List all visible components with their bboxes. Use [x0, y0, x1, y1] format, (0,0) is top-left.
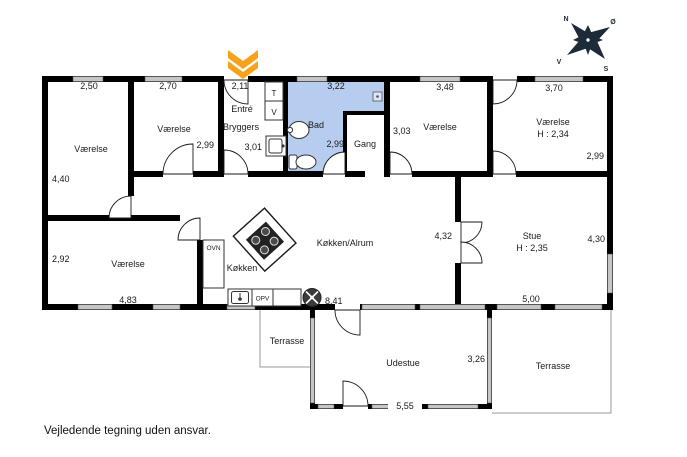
kitchen-counter: OPV [228, 289, 321, 307]
dim-2-92: 2,92 [52, 254, 70, 264]
dim-3-03: 3,03 [393, 126, 411, 136]
sink-tap [281, 144, 284, 147]
compass-north-label: N [563, 16, 568, 23]
door-swing [178, 218, 200, 240]
dim-5-00: 5,00 [522, 294, 540, 304]
door-swing [390, 152, 412, 174]
window [318, 405, 334, 409]
compass-rose-icon: N Ø S V [557, 16, 617, 73]
room-label-koekken-alrum: Køkken/Alrum [317, 238, 374, 248]
door-swing [335, 310, 360, 335]
compass-east-label: Ø [610, 19, 616, 26]
room-label-vaerelse-nw: Værelse [74, 144, 108, 154]
hob-fan-icon [303, 289, 321, 307]
compass-south-label: S [604, 66, 609, 73]
dim-8-41: 8,41 [325, 296, 343, 306]
compass-center [586, 38, 590, 42]
wall [42, 76, 48, 310]
wall [412, 171, 487, 177]
door-swing [109, 196, 131, 218]
sink-tap [238, 297, 242, 301]
room-ceiling-vaerelse-ne: H : 2,34 [537, 129, 569, 139]
oven-label: OVN [206, 245, 220, 252]
counter-cabinet [273, 289, 301, 306]
room-label-bad: Bad [308, 120, 324, 130]
dim-3-48: 3,48 [436, 82, 454, 92]
dim-3-70: 3,70 [545, 83, 563, 93]
wall [343, 111, 388, 115]
door-swing [493, 151, 516, 174]
window [428, 405, 478, 409]
window [362, 305, 415, 310]
door-swing [163, 144, 193, 174]
entrance-chevron-down-icon [228, 50, 258, 79]
wall [455, 263, 461, 308]
window [78, 305, 112, 310]
door-swing [343, 381, 368, 406]
wall [248, 171, 323, 177]
hob-center [310, 296, 314, 300]
door-swing [493, 80, 517, 104]
dim-3-22: 3,22 [327, 81, 345, 91]
room-label-entre: Entré [231, 104, 253, 114]
wall [455, 177, 461, 222]
dim-3-01: 3,01 [244, 142, 262, 152]
room-label-vaerelse-sw: Værelse [111, 259, 145, 269]
stove-island-icon [233, 208, 296, 271]
wall [345, 171, 365, 177]
wall [197, 240, 203, 308]
compass-west-label: V [557, 59, 562, 66]
dim-5-55: 5,55 [396, 401, 414, 411]
double-door-swing [461, 242, 482, 263]
dim-2-11: 2,11 [232, 81, 249, 91]
room-label-vaerelse-ne: Værelse [536, 117, 570, 127]
sink-basin [269, 139, 282, 153]
dim-4-30: 4,30 [587, 234, 605, 244]
dim-2-99-c: 2,99 [586, 151, 604, 161]
wall [193, 171, 224, 177]
washer-label: V [271, 108, 277, 117]
dishwasher-label: OPV [256, 296, 270, 303]
room-label-udestue: Udestue [386, 358, 420, 368]
disclaimer-text: Vejledende tegning uden ansvar. [44, 425, 211, 437]
door-swing [224, 150, 248, 174]
wall [487, 76, 493, 177]
sink-icon [266, 136, 286, 156]
room-label-gang: Gang [354, 139, 376, 149]
room-label-koekken: Køkken [227, 263, 258, 273]
window [535, 77, 583, 82]
room-label-terrasse-large: Terrasse [536, 361, 571, 371]
sink-tap [287, 127, 292, 132]
dim-4-83: 4,83 [119, 295, 137, 305]
wall [283, 76, 288, 177]
window [420, 305, 485, 310]
room-label-bryggers: Bryggers [223, 122, 260, 132]
window [311, 318, 315, 403]
dim-4-32: 4,32 [434, 231, 452, 241]
window [420, 77, 460, 82]
toilet-icon [289, 155, 316, 169]
room-label-vaerelse-n: Værelse [157, 124, 191, 134]
floor-drain-icon [373, 92, 382, 101]
dim-4-40: 4,40 [52, 174, 70, 184]
dim-2-99-a: 2,99 [196, 140, 214, 150]
wall [516, 171, 607, 177]
dim-2-70: 2,70 [159, 81, 177, 91]
room-label-vaerelse-mid: Værelse [423, 122, 457, 132]
dim-3-26: 3,26 [467, 354, 485, 364]
wall [384, 76, 390, 177]
window [153, 305, 180, 310]
wall [128, 76, 134, 196]
wall [128, 171, 163, 177]
window [608, 254, 613, 293]
dim-2-50: 2,50 [80, 81, 98, 91]
room-ceiling-stue: H : 2,35 [516, 243, 548, 253]
floorplan-page: T V OVN [0, 0, 687, 457]
double-door-swing [461, 222, 482, 243]
dim-2-99-b: 2,99 [326, 139, 344, 149]
room-label-terrasse-small: Terrasse [270, 336, 305, 346]
floorplan-drawing: T V OVN [0, 0, 687, 457]
drain-dot [376, 95, 379, 98]
toilet-bowl [296, 155, 316, 169]
dryer-label: T [272, 89, 277, 98]
window [555, 305, 602, 310]
room-label-stue: Stue [523, 231, 542, 241]
window [297, 77, 327, 82]
window [497, 305, 541, 310]
window [488, 318, 492, 403]
